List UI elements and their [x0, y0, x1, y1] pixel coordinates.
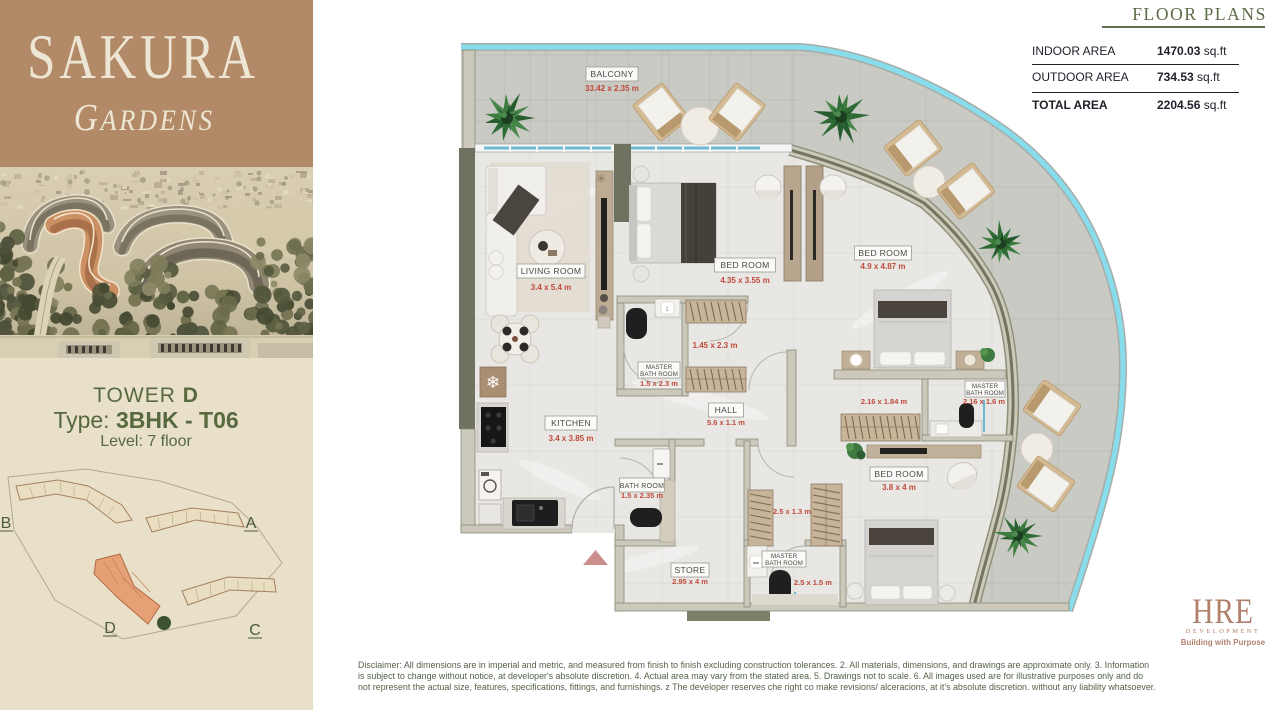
svg-text:MASTER: MASTER	[646, 364, 673, 371]
svg-text:BED ROOM: BED ROOM	[858, 248, 907, 258]
svg-text:BED ROOM: BED ROOM	[720, 260, 769, 270]
svg-text:BATH ROOM: BATH ROOM	[966, 390, 1004, 397]
svg-text:2.16 x 1.6 m: 2.16 x 1.6 m	[963, 397, 1005, 406]
svg-text:1.5 x 2.35 m: 1.5 x 2.35 m	[621, 491, 663, 500]
svg-text:3.4 x 5.4 m: 3.4 x 5.4 m	[531, 283, 571, 292]
svg-text:C: C	[249, 622, 261, 639]
svg-text:D: D	[104, 620, 116, 637]
svg-text:BATH ROOM: BATH ROOM	[765, 560, 803, 567]
svg-text:❄: ❄	[486, 373, 500, 392]
svg-text:4.9 x 4.87 m: 4.9 x 4.87 m	[861, 262, 906, 271]
svg-text:3.4 x 3.85 m: 3.4 x 3.85 m	[549, 434, 594, 443]
svg-text:LIVING ROOM: LIVING ROOM	[521, 266, 582, 276]
svg-text:2.16 x 1.84 m: 2.16 x 1.84 m	[861, 397, 908, 406]
svg-text:3.8 x 4 m: 3.8 x 4 m	[882, 483, 916, 492]
svg-text:MASTER: MASTER	[972, 383, 999, 390]
svg-text:2.5 x 1.5 m: 2.5 x 1.5 m	[794, 578, 832, 587]
svg-text:BATH ROOM: BATH ROOM	[620, 483, 665, 490]
svg-text:✳: ✳	[596, 171, 607, 186]
svg-text:5.6 x 1.1 m: 5.6 x 1.1 m	[707, 418, 745, 427]
svg-text:B: B	[1, 515, 12, 532]
svg-text:33.42 x 2.35 m: 33.42 x 2.35 m	[585, 84, 639, 93]
svg-text:HALL: HALL	[715, 405, 738, 415]
svg-text:BED ROOM: BED ROOM	[874, 469, 923, 479]
svg-text:MASTER: MASTER	[771, 553, 798, 560]
svg-text:A: A	[246, 515, 257, 532]
svg-text:1.45 x 2.3 m: 1.45 x 2.3 m	[693, 341, 738, 350]
svg-text:KITCHEN: KITCHEN	[551, 418, 591, 428]
svg-text:BATH ROOM: BATH ROOM	[640, 371, 678, 378]
svg-text:2.95 x 4 m: 2.95 x 4 m	[672, 577, 708, 586]
svg-text:2.5 x 1.3 m: 2.5 x 1.3 m	[773, 507, 811, 516]
svg-text:4.35 x 3.55 m: 4.35 x 3.55 m	[720, 276, 769, 285]
svg-text:BALCONY: BALCONY	[590, 69, 633, 79]
svg-text:1.5 x 2.3 m: 1.5 x 2.3 m	[640, 379, 678, 388]
svg-text:STORE: STORE	[675, 565, 706, 575]
